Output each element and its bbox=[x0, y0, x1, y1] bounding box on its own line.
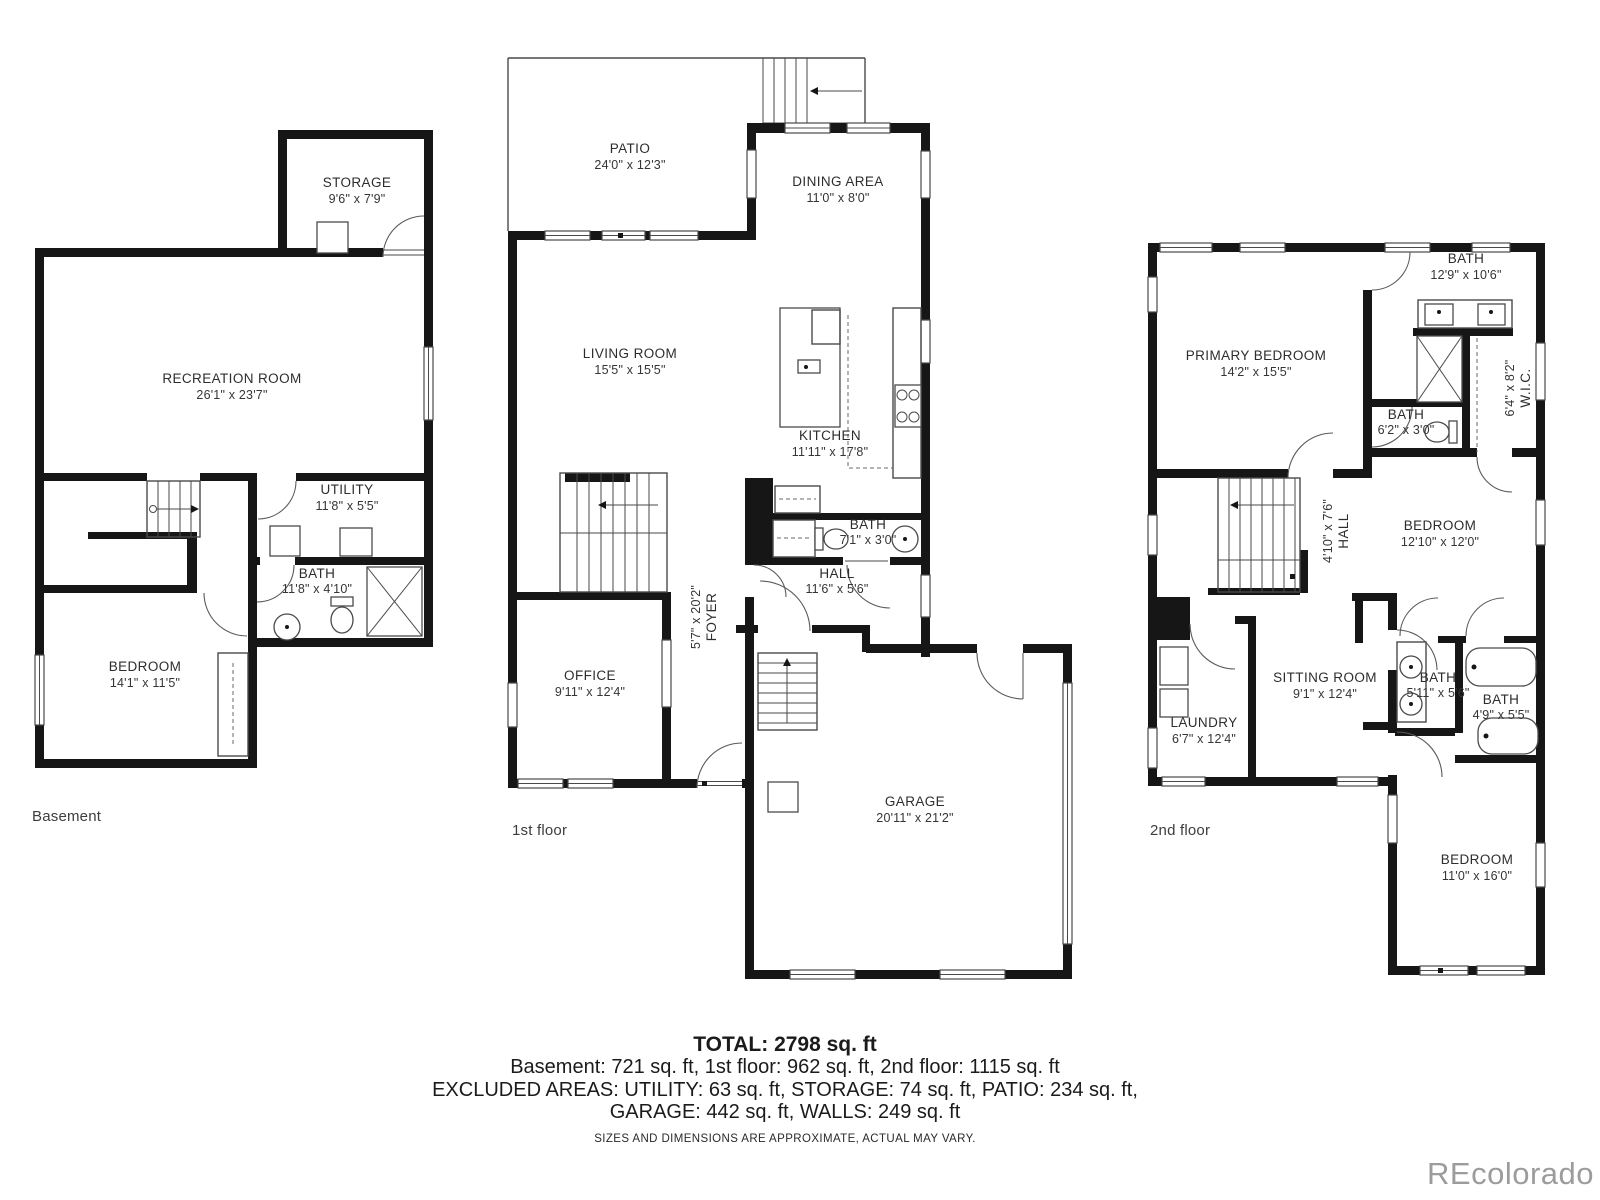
first-floor-plan: PATIO 24'0" x 12'3" DINING AREA 11'0" x … bbox=[508, 58, 1072, 979]
room-dims-laundry: 6'7" x 12'4" bbox=[1172, 732, 1236, 746]
room-dims-bath: 7'1" x 3'0" bbox=[840, 533, 897, 547]
basement-walls bbox=[35, 130, 433, 768]
room-dims-dining: 11'0" x 8'0" bbox=[806, 191, 869, 205]
room-dims-primary-bedroom: 14'2" x 15'5" bbox=[1220, 365, 1291, 379]
first-floor-walls bbox=[508, 123, 1072, 979]
room-dims-foyer: 5'7" x 20'2" bbox=[689, 585, 703, 649]
garage-entry-door-arc bbox=[977, 653, 1023, 699]
floor-label-first: 1st floor bbox=[512, 822, 567, 839]
basement-stairs bbox=[147, 481, 200, 537]
room-label-bath-jack: BATH bbox=[1420, 670, 1457, 685]
room-dims-patio: 24'0" x 12'3" bbox=[594, 158, 665, 172]
floor-label-basement: Basement bbox=[32, 808, 102, 825]
second-floor-labels: PRIMARY BEDROOM 14'2" x 15'5" BATH 12'9"… bbox=[1150, 251, 1533, 883]
first-floor-patio bbox=[508, 58, 865, 231]
room-label-patio: PATIO bbox=[610, 141, 651, 156]
room-label-wic: W.I.C. bbox=[1518, 368, 1533, 407]
utility-unit-2 bbox=[340, 528, 372, 556]
basement-labels: STORAGE 9'6" x 7'9" RECREATION ROOM 26'1… bbox=[32, 175, 391, 825]
room-dims-utility: 11'8" x 5'5" bbox=[315, 499, 378, 513]
summary-disclaimer: SIZES AND DIMENSIONS ARE APPROXIMATE, AC… bbox=[0, 1133, 1570, 1145]
room-label-bath: BATH bbox=[299, 566, 336, 581]
toilet-tank bbox=[331, 597, 353, 606]
floor-label-second: 2nd floor bbox=[1150, 822, 1210, 839]
room-label-garage: GARAGE bbox=[885, 794, 945, 809]
room-dims-bedroom: 14'1" x 11'5" bbox=[110, 676, 180, 690]
room-label-utility: UTILITY bbox=[320, 482, 373, 497]
room-label-laundry: LAUNDRY bbox=[1170, 715, 1237, 730]
floor-plan-page: STORAGE 9'6" x 7'9" RECREATION ROOM 26'1… bbox=[0, 0, 1600, 1200]
room-dims-hall: 11'6" x 5'6" bbox=[805, 582, 868, 596]
room-dims-garage: 20'11" x 21'2" bbox=[876, 811, 953, 825]
room-dims-bath-jack: 5'11" x 5'6" bbox=[1406, 686, 1469, 700]
room-label-bedroom-lower: BEDROOM bbox=[1441, 852, 1514, 867]
room-label-bath-small: BATH bbox=[1388, 407, 1425, 422]
summary-total: TOTAL: 2798 sq. ft bbox=[0, 1033, 1570, 1056]
room-dims-bath-main: 12'9" x 10'6" bbox=[1430, 268, 1501, 282]
watermark-logo: REcolorado bbox=[1427, 1156, 1594, 1192]
room-dims-office: 9'11" x 12'4" bbox=[555, 685, 625, 699]
first-floor-stairs bbox=[560, 473, 667, 592]
room-label-foyer: FOYER bbox=[704, 593, 719, 642]
summary-block: TOTAL: 2798 sq. ft Basement: 721 sq. ft,… bbox=[0, 1033, 1570, 1145]
room-label-office: OFFICE bbox=[564, 668, 616, 683]
first-floor-windows bbox=[508, 123, 1072, 979]
first-floor-labels: PATIO 24'0" x 12'3" DINING AREA 11'0" x … bbox=[512, 141, 954, 839]
kitchen-fixtures bbox=[775, 308, 921, 513]
room-dims-living: 15'5" x 15'5" bbox=[594, 363, 665, 377]
garage-utility-box bbox=[768, 782, 798, 812]
room-dims-bath: 11'8" x 4'10" bbox=[282, 582, 352, 596]
summary-excluded-line-1: EXCLUDED AREAS: UTILITY: 63 sq. ft, STOR… bbox=[0, 1079, 1570, 1102]
utility-unit-1 bbox=[270, 526, 300, 556]
room-label-recreation: RECREATION ROOM bbox=[162, 371, 301, 386]
second-floor-plan: PRIMARY BEDROOM 14'2" x 15'5" BATH 12'9"… bbox=[1148, 243, 1545, 975]
room-label-bath-tub: BATH bbox=[1483, 692, 1520, 707]
room-label-bath-main: BATH bbox=[1448, 251, 1485, 266]
second-floor-stairs bbox=[1218, 478, 1300, 592]
first-floor-ticks bbox=[510, 125, 905, 977]
room-dims-storage: 9'6" x 7'9" bbox=[329, 192, 386, 206]
room-label-sitting: SITTING ROOM bbox=[1273, 670, 1377, 685]
room-dims-bedroom-mid: 12'10" x 12'0" bbox=[1401, 535, 1479, 549]
room-label-storage: STORAGE bbox=[323, 175, 392, 190]
room-dims-bath-small: 6'2" x 3'0" bbox=[1378, 423, 1435, 437]
summary-excluded-line-2: GARAGE: 442 sq. ft, WALLS: 249 sq. ft bbox=[0, 1101, 1570, 1124]
room-dims-kitchen: 11'11" x 17'8" bbox=[792, 445, 868, 459]
room-label-living: LIVING ROOM bbox=[583, 346, 677, 361]
room-label-bedroom: BEDROOM bbox=[109, 659, 182, 674]
room-label-hall: HALL bbox=[819, 566, 854, 581]
room-label-bath: BATH bbox=[850, 517, 887, 532]
room-dims-hall: 4'10" x 7'6" bbox=[1321, 499, 1335, 563]
toilet-bowl bbox=[331, 607, 353, 633]
summary-floors-line: Basement: 721 sq. ft, 1st floor: 962 sq.… bbox=[0, 1056, 1570, 1079]
room-label-bedroom-mid: BEDROOM bbox=[1404, 518, 1477, 533]
storage-box bbox=[317, 222, 348, 253]
room-dims-sitting: 9'1" x 12'4" bbox=[1293, 687, 1357, 701]
garage-stairs bbox=[758, 653, 817, 730]
room-dims-recreation: 26'1" x 23'7" bbox=[196, 388, 267, 402]
toilet-tank bbox=[1449, 421, 1457, 443]
washer bbox=[1160, 647, 1188, 685]
room-dims-bath-tub: 4'9" x 5'5" bbox=[1473, 708, 1530, 722]
room-label-primary-bedroom: PRIMARY BEDROOM bbox=[1186, 348, 1327, 363]
room-label-hall: HALL bbox=[1336, 513, 1351, 548]
room-label-dining: DINING AREA bbox=[792, 174, 883, 189]
room-label-kitchen: KITCHEN bbox=[799, 428, 861, 443]
dryer bbox=[1160, 689, 1188, 717]
room-dims-wic: 6'4" x 8'2" bbox=[1503, 360, 1517, 417]
toilet-tank bbox=[815, 528, 823, 550]
room-dims-bedroom-lower: 11'0" x 16'0" bbox=[1442, 869, 1512, 883]
basement-plan: STORAGE 9'6" x 7'9" RECREATION ROOM 26'1… bbox=[32, 130, 433, 825]
floor-plan-drawing: STORAGE 9'6" x 7'9" RECREATION ROOM 26'1… bbox=[0, 0, 1600, 1200]
